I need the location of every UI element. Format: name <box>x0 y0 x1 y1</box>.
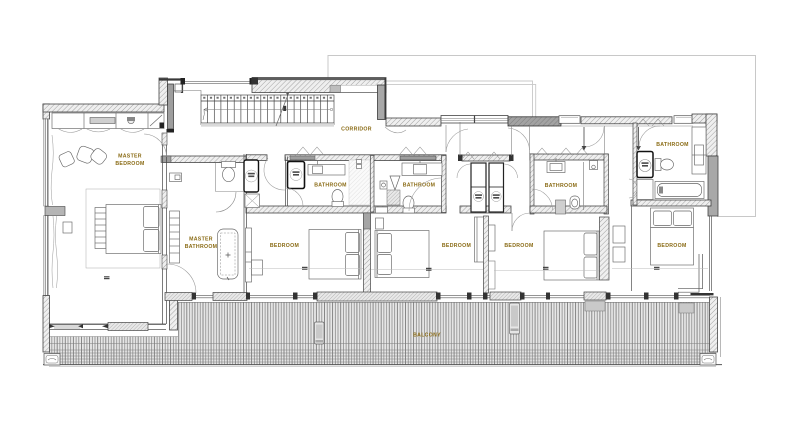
svg-text:CORRIDOR: CORRIDOR <box>341 127 372 133</box>
svg-text:BATHROOM: BATHROOM <box>314 183 347 189</box>
svg-text:BEDROOM: BEDROOM <box>504 243 533 249</box>
svg-text:BEDROOM: BEDROOM <box>270 243 299 249</box>
svg-text:BEDROOM: BEDROOM <box>442 243 471 249</box>
svg-text:MASTER: MASTER <box>118 154 142 160</box>
svg-text:BATHROOM: BATHROOM <box>656 142 689 148</box>
svg-text:BEDROOM: BEDROOM <box>115 161 144 167</box>
svg-text:MASTER: MASTER <box>189 237 213 243</box>
svg-text:BEDROOM: BEDROOM <box>657 243 686 249</box>
svg-text:BATHROOM: BATHROOM <box>545 183 578 189</box>
svg-text:BATHROOM: BATHROOM <box>185 244 218 250</box>
svg-text:BALCONY: BALCONY <box>413 333 441 339</box>
